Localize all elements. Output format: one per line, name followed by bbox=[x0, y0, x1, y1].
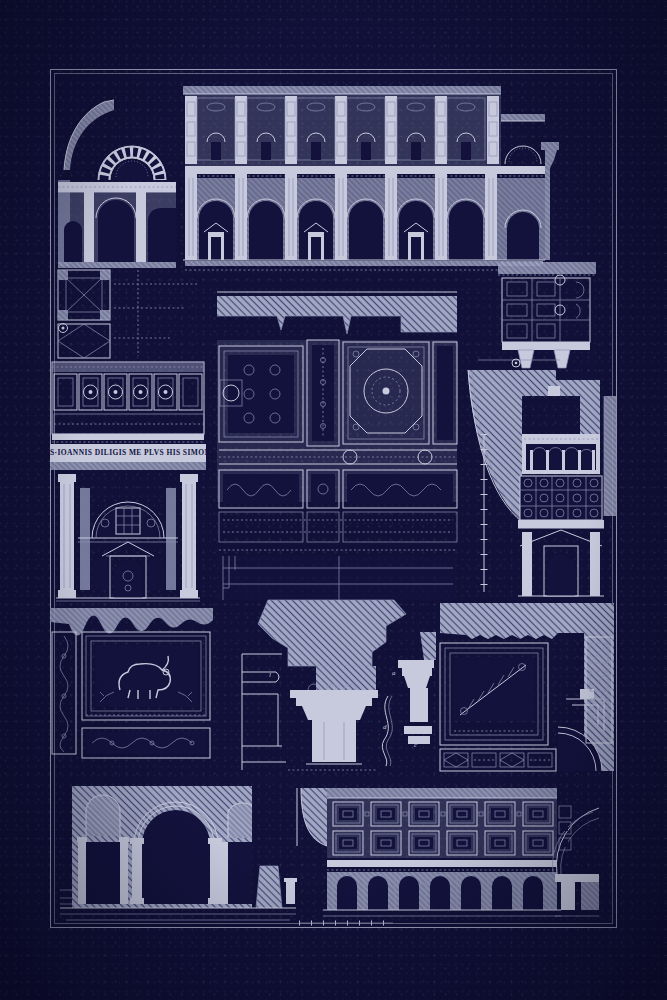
figure-vault-plan bbox=[50, 268, 202, 360]
mosaic-inscription: S·IOANNIS DILIGIS ME PLVS HIS SIMON bbox=[50, 444, 206, 462]
label-l: l bbox=[269, 672, 271, 679]
label-c: c bbox=[414, 742, 417, 749]
blueprint-plate: S·IOANNIS DILIGIS ME PLVS HIS SIMON bbox=[0, 0, 667, 1000]
figure-mosaic-panel bbox=[50, 606, 213, 762]
figure-arch-section bbox=[460, 356, 616, 602]
figure-soffit-band: S·IOANNIS DILIGIS ME PLVS HIS SIMON bbox=[50, 356, 206, 470]
figure-building-section bbox=[56, 84, 178, 270]
figure-arcade bbox=[58, 782, 298, 924]
figure-vault-ornament bbox=[438, 603, 616, 775]
figure-capital-profiles: l a d c bbox=[228, 596, 436, 776]
figure-interior-wall bbox=[215, 288, 459, 602]
figure-palace-facade bbox=[183, 84, 561, 272]
label-d: d bbox=[383, 724, 387, 731]
label-a: a bbox=[392, 670, 396, 677]
figure-hall-elevation bbox=[293, 782, 601, 930]
figure-portal bbox=[54, 468, 202, 602]
